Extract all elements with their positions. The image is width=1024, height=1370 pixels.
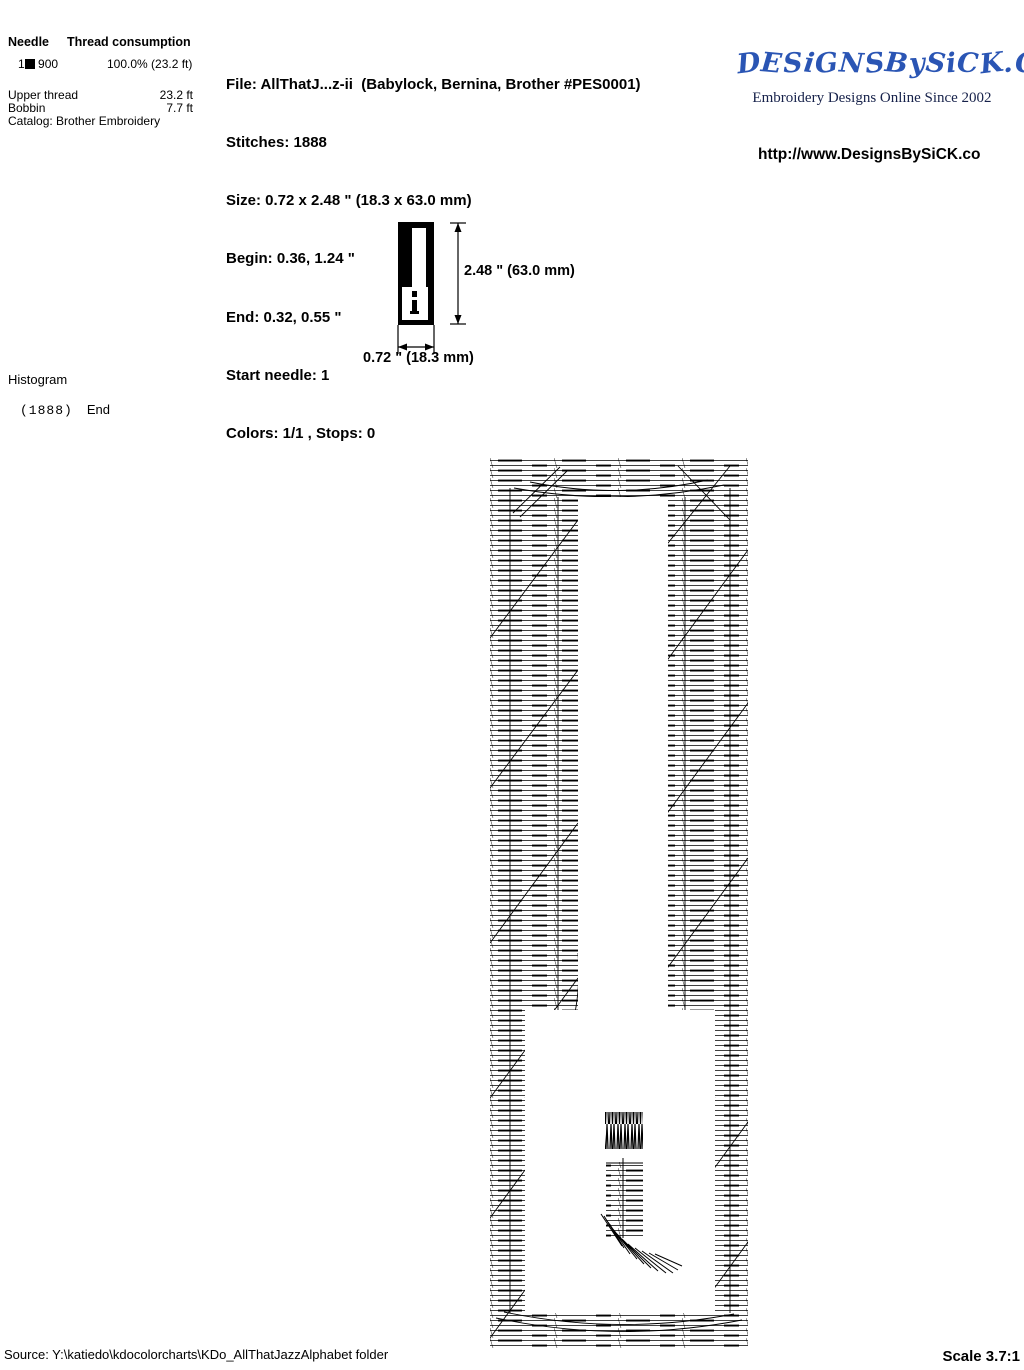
thumbnail-slot [412, 228, 426, 289]
catalog-line: Catalog: Brother Embroidery [8, 114, 160, 128]
size-line: Size: 0.72 x 2.48 " (18.3 x 63.0 mm) [226, 191, 641, 210]
thread-color-code: 900 [38, 57, 58, 71]
upper-thread-value: 23.2 ft [160, 88, 193, 102]
needle-row: 1 900 [18, 57, 58, 71]
upper-thread-label: Upper thread [8, 88, 78, 102]
histogram-entry: (1888)End [20, 402, 110, 418]
logo-tagline: Embroidery Designs Online Since 2002 [737, 90, 1007, 107]
stitch-render [490, 458, 748, 1348]
stitches-line: Stitches: 1888 [226, 133, 641, 152]
file-name-line: File: AllThatJ...z-ii (Babylock, Bernina… [226, 75, 641, 94]
histogram-title: Histogram [8, 372, 67, 387]
bobbin-row: Bobbin 7.7 ft [8, 101, 193, 115]
consumption-column-header: Thread consumption [67, 35, 191, 49]
arrowhead-down [455, 315, 462, 324]
bobbin-value: 7.7 ft [166, 101, 193, 115]
letter-i-stitches [601, 1112, 682, 1273]
upper-thread-row: Upper thread 23.2 ft [8, 88, 193, 102]
arrowhead-up [455, 223, 462, 232]
site-url: http://www.DesignsBySiCK.co [758, 146, 980, 164]
needle-number: 1 [18, 57, 25, 71]
histogram-stitch-count: (1888) [20, 403, 73, 418]
thread-color-swatch [25, 59, 35, 69]
scale-label: Scale 3.7:1 [850, 1348, 1020, 1365]
source-path: Source: Y:\katiedo\kdocolorcharts\KDo_Al… [4, 1347, 388, 1362]
width-dimension-label: 0.72 " (18.3 mm) [363, 350, 474, 366]
height-dimension-label: 2.48 " (63.0 mm) [464, 263, 575, 279]
bobbin-label: Bobbin [8, 101, 45, 115]
print-sheet: Needle Thread consumption 1 900 100.0% (… [0, 0, 1024, 1370]
thread-usage: 100.0% (23.2 ft) [107, 57, 192, 71]
letter-i-dot [605, 1112, 643, 1149]
needle-column-header: Needle [8, 35, 49, 49]
designs-by-sick-logo: DESiGNSBySiCK.COM [737, 48, 1023, 79]
colors-line: Colors: 1/1 , Stops: 0 [226, 424, 641, 443]
histogram-end-label: End [87, 402, 110, 417]
